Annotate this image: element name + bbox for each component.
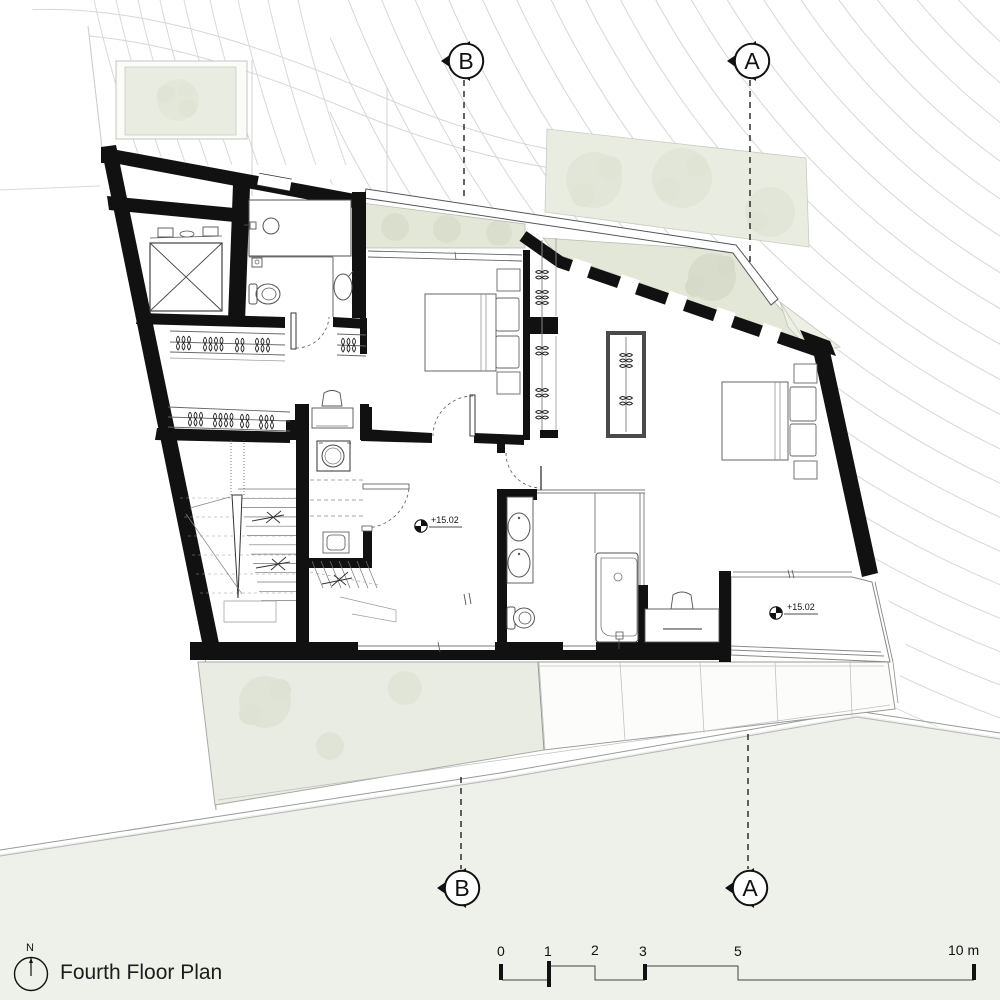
svg-text:0: 0 bbox=[497, 943, 505, 959]
svg-text:2: 2 bbox=[591, 942, 599, 958]
svg-text:3: 3 bbox=[639, 943, 647, 959]
svg-text:1: 1 bbox=[544, 943, 552, 959]
svg-text:B: B bbox=[458, 48, 473, 74]
svg-text:Fourth Floor Plan: Fourth Floor Plan bbox=[60, 961, 222, 984]
svg-text:5: 5 bbox=[734, 943, 742, 959]
svg-text:A: A bbox=[744, 48, 760, 74]
svg-text:N: N bbox=[26, 942, 34, 954]
svg-text:A: A bbox=[742, 875, 758, 901]
svg-text:10 m: 10 m bbox=[948, 942, 979, 958]
svg-text:+15.02: +15.02 bbox=[787, 602, 815, 612]
svg-text:B: B bbox=[454, 875, 469, 901]
svg-text:+15.02: +15.02 bbox=[431, 515, 459, 525]
